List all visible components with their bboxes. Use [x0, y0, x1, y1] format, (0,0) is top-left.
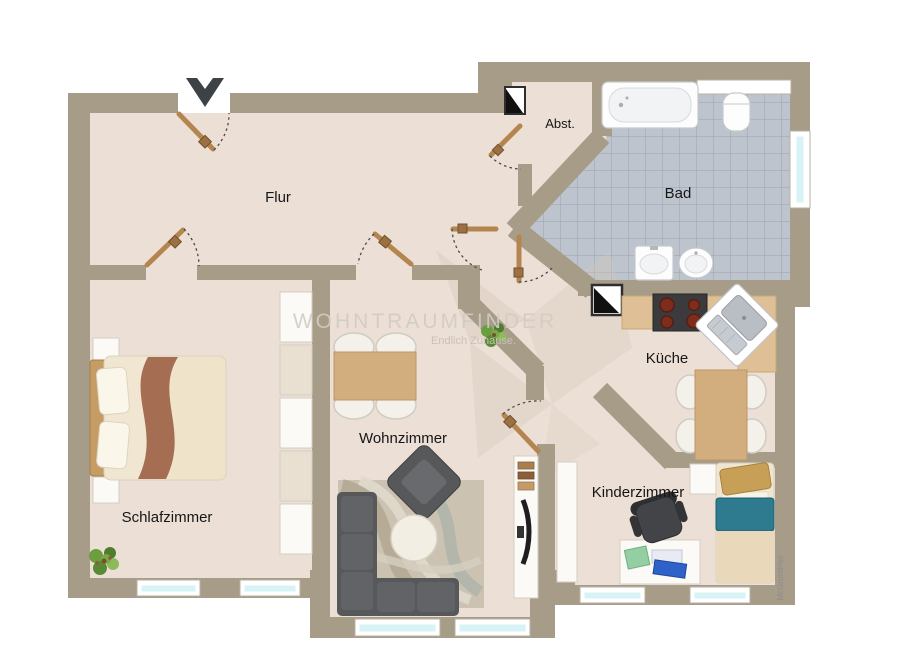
floorplan-page: WOHNTRAUMFINDER Endlich Zuhause. McGrund… [0, 0, 920, 650]
window [697, 80, 791, 94]
window [690, 587, 750, 603]
room-label-abstellraum: Abst. [545, 116, 575, 131]
room-label-wohnzimmer: Wohnzimmer [359, 430, 447, 447]
single-bed [716, 462, 774, 583]
room-label-kueche: Küche [646, 350, 689, 367]
nightstand [690, 464, 716, 494]
watermark-title: WOHNTRAUMFINDER [293, 310, 557, 333]
window [580, 587, 645, 603]
shaft-icon [592, 285, 622, 315]
double-bed [90, 356, 226, 480]
bathtub [602, 82, 698, 128]
window [790, 131, 810, 208]
window [137, 580, 200, 596]
north-arrow-icon [186, 78, 224, 107]
window [355, 619, 440, 636]
washbasin [635, 246, 673, 280]
bidet [679, 248, 713, 278]
coffee-table [391, 515, 437, 561]
room-label-flur: Flur [265, 189, 291, 206]
room-label-schlafzimmer: Schlafzimmer [122, 509, 213, 526]
watermark-credit: McGrundriss [776, 555, 785, 600]
floorplan: WOHNTRAUMFINDER Endlich Zuhause. McGrund… [0, 0, 920, 650]
window [455, 619, 530, 636]
room-label-bad: Bad [665, 185, 692, 202]
tv-shelf [514, 456, 538, 598]
shaft-icon [505, 87, 525, 114]
desk [620, 540, 700, 584]
kinder-wardrobe [557, 462, 577, 582]
room-label-kinderzimmer: Kinderzimmer [592, 484, 685, 501]
toilet [723, 93, 750, 131]
watermark-subtitle: Endlich Zuhause. [431, 335, 516, 347]
window [240, 580, 300, 596]
nightstand [93, 477, 119, 503]
